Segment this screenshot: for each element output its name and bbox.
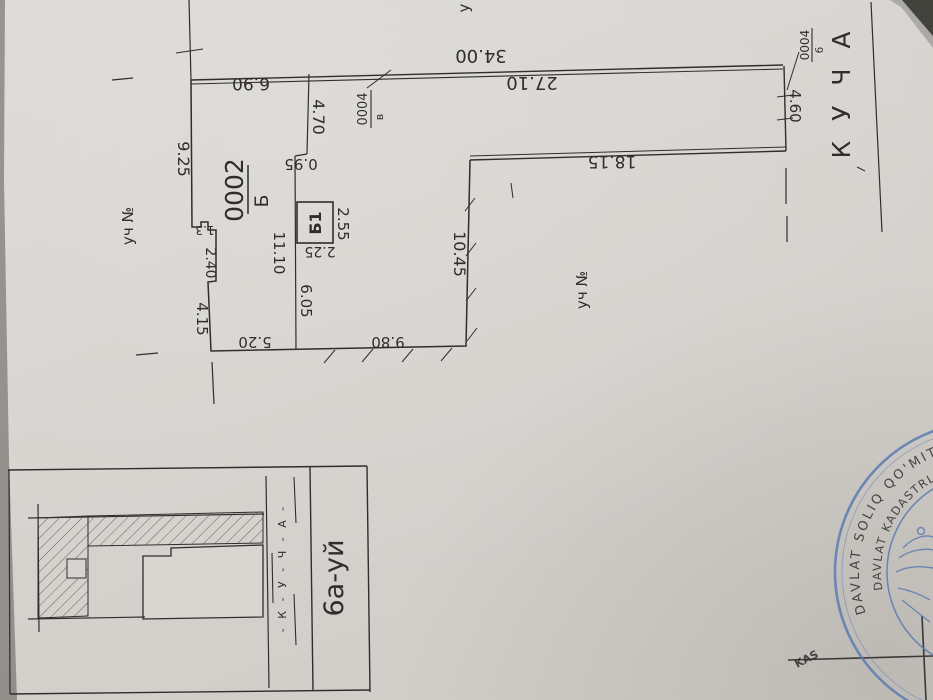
- street-name-label: К У Ч А: [827, 25, 856, 158]
- stamp-corner-fragment: KAS: [792, 648, 820, 671]
- stamp-emblem-wing-2: [899, 549, 933, 558]
- dim-bottom-right: 9.80: [371, 333, 404, 351]
- inset-border-top: [8, 466, 367, 470]
- stamp-emblem-star: [918, 528, 925, 535]
- inset-border-right: [367, 466, 370, 692]
- upper-neighbor-partial-label: у: [455, 3, 473, 12]
- fence-tick-5: [324, 350, 335, 363]
- inset-road-right-3: [294, 594, 296, 645]
- stamp-emblem: [896, 528, 933, 623]
- inset-separator: [310, 467, 313, 691]
- inset-small-structure: [67, 559, 86, 578]
- photo-corner-shadow: [890, 0, 933, 48]
- code-right-letter: б: [815, 47, 826, 53]
- dim-inner-lower: 6.05: [297, 284, 315, 317]
- street-small-mark: [857, 167, 865, 171]
- dim-inner-right: 10.45: [450, 231, 469, 277]
- boundary-street-front-outer: [191, 65, 783, 80]
- building-label: Б1: [306, 211, 325, 234]
- inset-road-left: [266, 476, 269, 688]
- inset-hatch-band: [88, 512, 263, 546]
- table-line-vertical: [922, 616, 926, 700]
- dim-building-side: 2.55: [334, 207, 352, 240]
- dim-top-right: 27.10: [506, 72, 558, 93]
- inset-road-right-2: [272, 553, 273, 603]
- fence-tick-8: [441, 348, 452, 361]
- stamp-emblem-wing-3: [896, 567, 933, 572]
- inner-line-entry: [307, 74, 309, 154]
- neighbor-dash-bottom: [136, 353, 158, 355]
- dims-rot90: 4.70 9.25 2.40 4.15 11.10 6.05 2.55 10.4…: [174, 89, 804, 335]
- dim-bottom-left: 5.20: [238, 333, 271, 351]
- dim-top-left: 6.90: [232, 73, 270, 93]
- dim-left-lower: 4.15: [193, 302, 211, 335]
- scanned-cadastral-sheet: 34.00 27.10 6.90 18.15 0.95 2.25 5.20 9.…: [0, 0, 933, 700]
- stamp-emblem-wheat-2: [902, 600, 930, 622]
- fence-tick-1: [465, 198, 475, 211]
- cadastral-plan-svg: 34.00 27.10 6.90 18.15 0.95 2.25 5.20 9.…: [0, 0, 933, 700]
- dim-inner-top: 18.15: [588, 151, 637, 171]
- boundary-street-front-inner: [191, 69, 783, 84]
- dim-building-bottom: 2.25: [304, 243, 335, 259]
- code-right: 0004: [798, 30, 812, 61]
- inset-house-label: 6а-уй: [319, 540, 350, 617]
- inset-road-right-1: [294, 477, 296, 523]
- dim-inner-upper: 11.10: [270, 232, 288, 275]
- inset-building-outline: [143, 545, 263, 619]
- boundary-left-extension: [189, 0, 191, 80]
- dim-step: 2.40: [202, 247, 218, 278]
- left-neighbor-label: уч №: [119, 207, 137, 245]
- parcel-number: 0002: [220, 158, 249, 222]
- inset-map: [8, 466, 370, 694]
- stamp-emblem-wheat-1: [898, 588, 930, 600]
- dash-below-corner: [212, 362, 214, 404]
- dim-step-small: 1.3: [195, 223, 214, 237]
- dim-jog: 0.95: [284, 155, 317, 173]
- neighbor-dash-top: [112, 78, 133, 80]
- dim-entry-depth: 4.70: [309, 99, 328, 135]
- official-stamp: DAVLAT SOLIQ QO'MITASI DAVLAT KADASTRLAR…: [792, 422, 933, 700]
- boundary-tick-top-left: [176, 49, 203, 53]
- code-left: 0004: [356, 92, 371, 125]
- inset-street-letters: - К - У - Ч - А -: [276, 504, 289, 632]
- dim-street-front: 34.00: [455, 45, 507, 66]
- bottom-neighbor-label: уч №: [573, 271, 591, 309]
- inner-line-long: [295, 156, 296, 350]
- dim-left-upper: 9.25: [174, 141, 193, 177]
- fence-tick-4: [467, 328, 477, 341]
- boundary-right-edge: [784, 66, 786, 151]
- inset-border-bottom: [10, 690, 370, 694]
- stamp-emblem-wing-1: [903, 536, 933, 548]
- street-edge-line: [871, 2, 882, 232]
- parcel-letter: Б: [251, 194, 273, 207]
- photo-edge-left: [0, 0, 17, 700]
- tick-inner-top: [511, 183, 513, 198]
- code-left-letter: в: [373, 114, 386, 120]
- dim-right-side: 4.60: [786, 89, 804, 122]
